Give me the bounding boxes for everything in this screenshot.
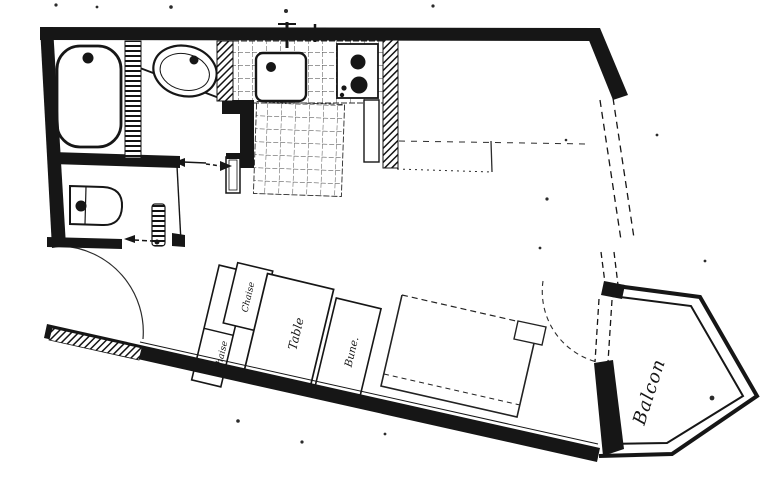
- entry-arrow-left-shaft: [183, 162, 206, 163]
- radiator: [152, 204, 165, 246]
- bath-divider-wall: [125, 41, 141, 158]
- toilet-flush-dot: [76, 201, 87, 212]
- entry-door-hinge-block: [226, 153, 241, 159]
- floor-plan-drawing: Chaise Chaise Table Bune. Balcon: [0, 0, 766, 478]
- tile-area-lower: [253, 101, 344, 196]
- kitchen-left-wall: [217, 41, 233, 101]
- kitchen-sink-tap: [266, 62, 276, 72]
- kitchen-counter: [364, 100, 379, 162]
- wc-wall-stub: [172, 233, 185, 247]
- entry-door-leaf: [226, 157, 240, 193]
- bathtub-drain: [83, 53, 94, 64]
- washbasin-tap: [190, 56, 199, 65]
- kitchen-right-wall: [383, 40, 398, 168]
- stove-knob-1: [341, 85, 346, 90]
- kitchen-sink: [256, 53, 306, 101]
- top-wall: [40, 27, 597, 41]
- stove-burner-2: [351, 77, 368, 94]
- scanned-floor-plan: Chaise Chaise Table Bune. Balcon: [0, 0, 766, 478]
- stove-burner-1: [351, 55, 366, 70]
- wc-arrow-dot: [155, 240, 160, 245]
- stove-knob-2: [340, 93, 344, 97]
- wc-bottom-wall: [47, 237, 122, 249]
